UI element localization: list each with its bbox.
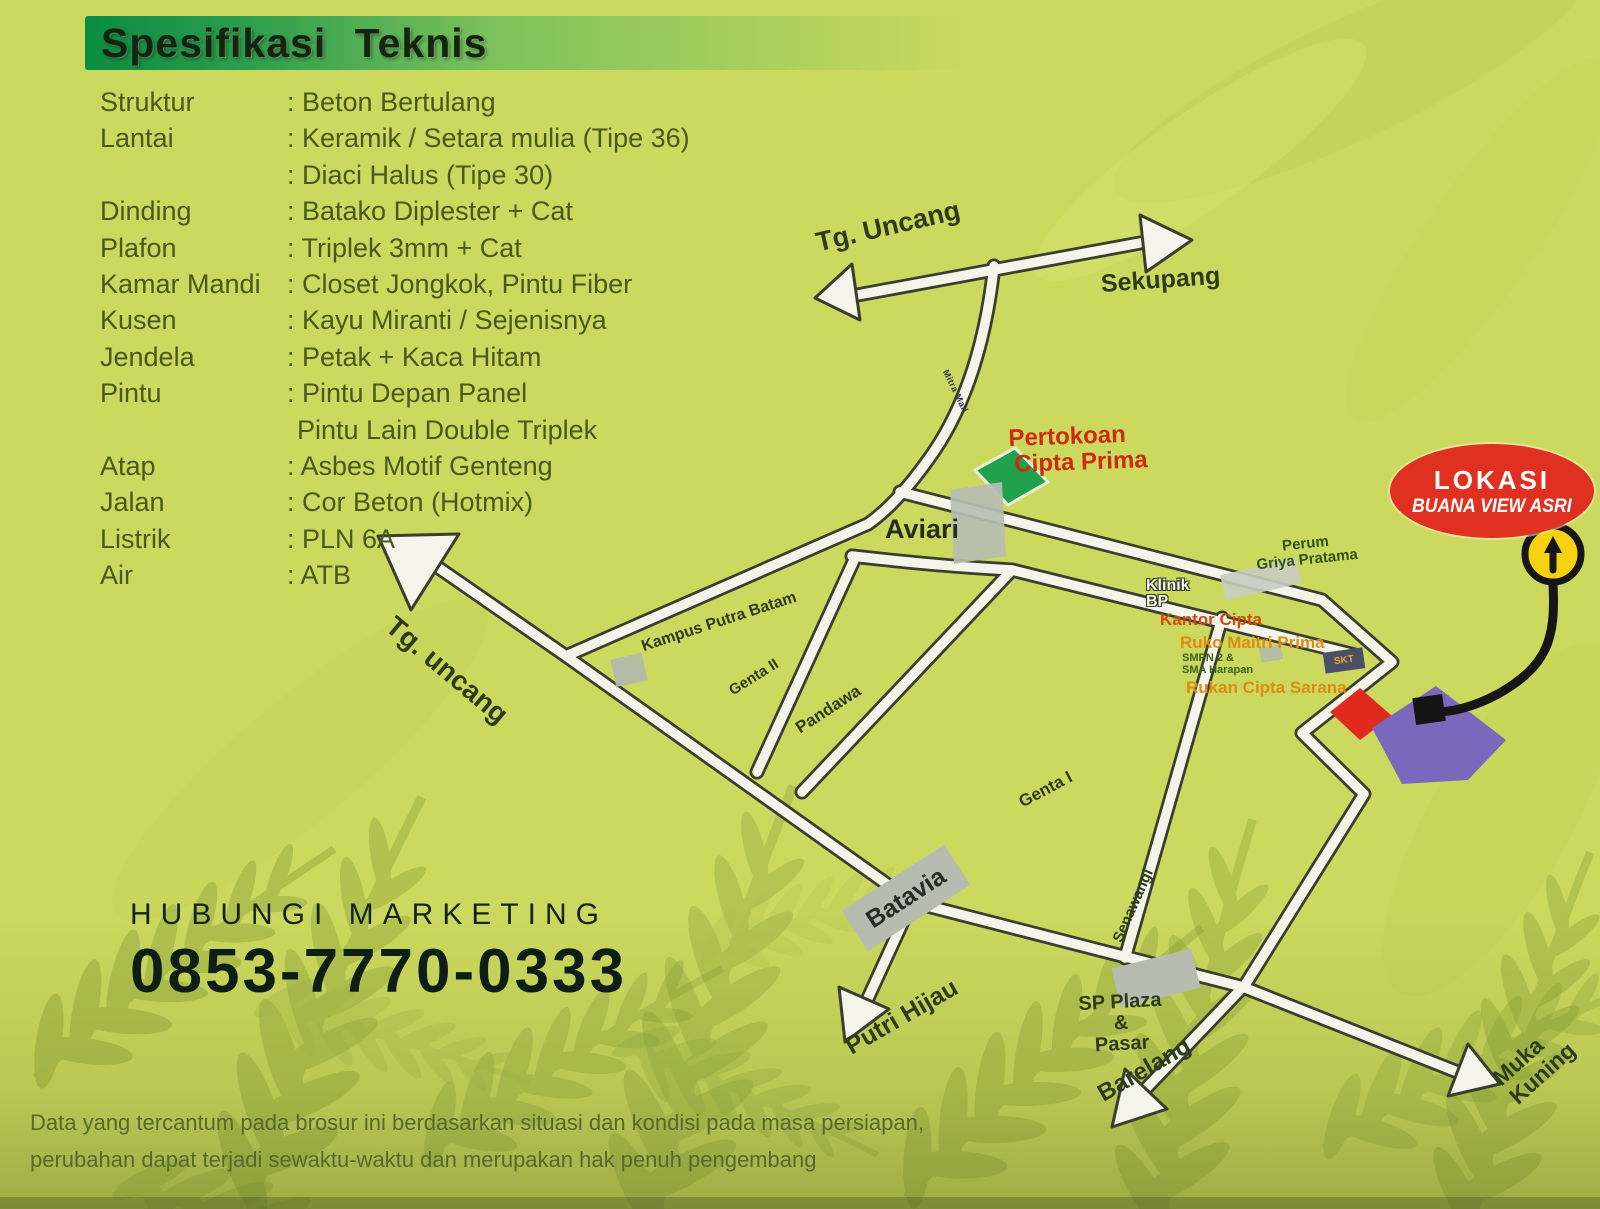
place-label-line: Cipta Prima bbox=[1014, 447, 1148, 478]
spec-value: : Closet Jongkok, Pintu Fiber bbox=[287, 266, 632, 302]
disclaimer: Data yang tercantum pada brosur ini berd… bbox=[30, 1104, 924, 1178]
spec-label: Struktur bbox=[100, 84, 287, 120]
spec-row: Lantai : Keramik / Setara mulia (Tipe 36… bbox=[100, 120, 690, 193]
location-badge-subtitle: BUANA VIEW ASRI bbox=[1412, 496, 1572, 518]
place-label-sekolah: SMPN 2 & SMA Harapan bbox=[1182, 652, 1253, 676]
place-label-rukan-cipta-sarana: Rukan Cipta Sarana bbox=[1186, 678, 1347, 698]
spec-label: Plafon bbox=[100, 230, 287, 266]
place-label-ruko-maitri-prima: Ruko Maitri Prima bbox=[1180, 633, 1325, 653]
spec-row: Kamar Mandi : Closet Jongkok, Pintu Fibe… bbox=[100, 266, 690, 302]
spec-value-line: Pintu Lain Double Triplek bbox=[287, 412, 597, 448]
page-title: Spesifikasi Teknis bbox=[85, 16, 1015, 70]
spec-label: Dinding bbox=[100, 193, 287, 229]
spec-row: Pintu : Pintu Depan Panel Pintu Lain Dou… bbox=[100, 375, 690, 448]
location-badge: LOKASI BUANA VIEW ASRI bbox=[1390, 444, 1594, 538]
place-label-line: Klinik bbox=[1146, 578, 1190, 594]
spec-value: : Asbes Motif Genteng bbox=[287, 448, 553, 484]
spec-value-line: : Pintu Depan Panel bbox=[287, 375, 597, 411]
header-bar: Spesifikasi Teknis bbox=[85, 16, 1015, 70]
brochure-page: Spesifikasi Teknis Struktur : Beton Bert… bbox=[0, 0, 1600, 1209]
place-label-aviari: Aviari bbox=[885, 514, 959, 545]
kampus-building bbox=[610, 653, 647, 687]
spec-label: Atap bbox=[100, 448, 287, 484]
spec-row: Jalan : Cor Beton (Hotmix) bbox=[100, 484, 690, 520]
spec-row: Kusen : Kayu Miranti / Sejenisnya bbox=[100, 302, 690, 338]
marketing-contact: HUBUNGI MARKETING 0853-7770-0333 bbox=[130, 898, 627, 1007]
spec-value: : ATB bbox=[287, 557, 351, 593]
place-label-line: SMPN 2 & bbox=[1182, 652, 1253, 664]
marketing-heading: HUBUNGI MARKETING bbox=[130, 898, 627, 932]
spec-row: Listrik : PLN 6A bbox=[100, 521, 690, 557]
spec-label: Air bbox=[100, 557, 287, 593]
spec-label: Jalan bbox=[100, 484, 287, 520]
place-label-line: BP bbox=[1146, 594, 1190, 610]
place-label-pertokoan-cipta-prima: Pertokoan Cipta Prima bbox=[1008, 421, 1148, 478]
spec-label: Kamar Mandi bbox=[100, 266, 287, 302]
spec-row: Dinding : Batako Diplester + Cat bbox=[100, 193, 690, 229]
spec-value-line: : Keramik / Setara mulia (Tipe 36) bbox=[287, 120, 690, 156]
spec-value: : Kayu Miranti / Sejenisnya bbox=[287, 302, 607, 338]
disclaimer-line: Data yang tercantum pada brosur ini berd… bbox=[30, 1104, 924, 1141]
spec-value: : Batako Diplester + Cat bbox=[287, 193, 573, 229]
spec-list: Struktur : Beton Bertulang Lantai : Kera… bbox=[100, 84, 690, 594]
disclaimer-line: perubahan dapat terjadi sewaktu-waktu da… bbox=[30, 1141, 924, 1178]
site-marker-square bbox=[1412, 694, 1445, 725]
spec-label: Jendela bbox=[100, 339, 287, 375]
spec-value: : Petak + Kaca Hitam bbox=[287, 339, 541, 375]
spec-value: : Pintu Depan Panel Pintu Lain Double Tr… bbox=[287, 375, 597, 448]
place-label-klinik: Klinik BP bbox=[1146, 578, 1190, 610]
spec-label: Pintu bbox=[100, 375, 287, 448]
spec-value: : Cor Beton (Hotmix) bbox=[287, 484, 533, 520]
spec-value: : Triplek 3mm + Cat bbox=[287, 230, 522, 266]
marketing-phone: 0853-7770-0333 bbox=[130, 936, 627, 1007]
spec-value-line: : Diaci Halus (Tipe 30) bbox=[287, 157, 690, 193]
spec-value: : Keramik / Setara mulia (Tipe 36) : Dia… bbox=[287, 120, 690, 193]
arrow-tg-uncang-top-icon bbox=[815, 264, 860, 320]
spec-row: Struktur : Beton Bertulang bbox=[100, 84, 690, 120]
location-badge-title: LOKASI bbox=[1434, 465, 1550, 496]
place-label-line: SMA Harapan bbox=[1182, 664, 1253, 676]
place-label-kantor-cipta: Kantor Cipta bbox=[1160, 610, 1262, 630]
place-label-skt: SKT bbox=[1333, 654, 1354, 668]
spec-label: Kusen bbox=[100, 302, 287, 338]
spec-value: : Beton Bertulang bbox=[287, 84, 496, 120]
spec-row: Jendela : Petak + Kaca Hitam bbox=[100, 339, 690, 375]
callout-line bbox=[1436, 584, 1554, 712]
spec-row: Air : ATB bbox=[100, 557, 690, 593]
spec-label: Listrik bbox=[100, 521, 287, 557]
spec-label: Lantai bbox=[100, 120, 287, 193]
spec-row: Plafon : Triplek 3mm + Cat bbox=[100, 230, 690, 266]
spec-row: Atap : Asbes Motif Genteng bbox=[100, 448, 690, 484]
spec-value: : PLN 6A bbox=[287, 521, 395, 557]
